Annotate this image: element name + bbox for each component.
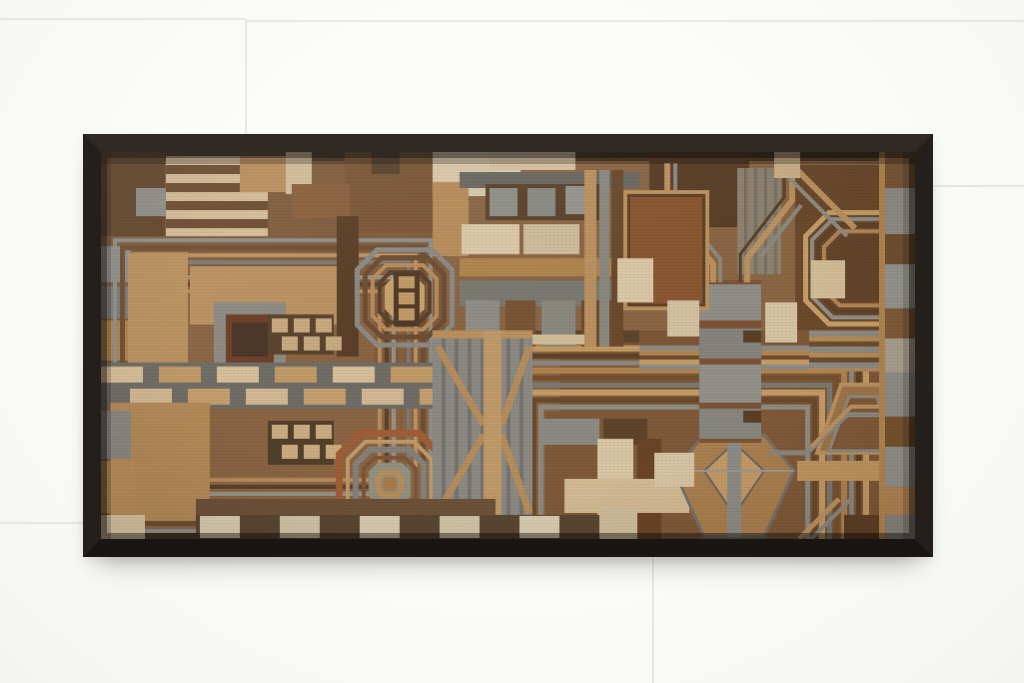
art-shape [809,330,885,336]
art-shape [304,445,320,459]
art-shape [304,336,320,350]
art-shape [809,369,885,371]
art-shape [282,336,298,350]
art-shape [809,363,885,369]
art-shape [539,419,599,445]
art-shape [507,330,511,539]
art-shape [727,435,741,537]
art-shape [754,168,757,274]
art-shape [903,152,915,539]
art-shape [166,228,268,236]
art-shape [166,210,268,219]
art-shape [699,365,761,403]
art-shape [809,353,885,358]
art-shape [316,425,332,439]
art-shape [462,224,520,254]
art-shape [599,170,609,346]
art-shape [667,300,699,336]
art-shape [362,389,404,405]
art-shape [304,389,346,405]
art-shape [217,367,259,383]
art-shape [809,358,885,363]
art-shape [490,188,518,216]
art-shape [166,219,268,228]
art-shape [294,425,310,439]
art-shape [391,367,433,383]
art-shape [757,168,764,274]
art-shape [246,389,288,405]
art-shape [272,318,288,332]
art-shape [383,477,397,491]
art-shape [879,152,885,539]
art-shape [275,367,317,383]
art-shape [597,439,633,485]
art-shape [316,318,332,332]
art-shape [510,330,519,539]
art-shape [188,389,230,405]
art-shape [101,152,111,539]
art-shape [809,341,885,346]
art-shape [282,445,298,459]
art-shape [399,308,415,320]
art-shape [765,302,797,342]
art-shape [166,201,268,210]
art-shape [523,224,579,254]
art-shape [333,367,375,383]
wall-background [0,0,1024,683]
art-shape [797,461,885,481]
art-shape [743,330,761,342]
art-shape [399,292,415,304]
art-shape [159,367,201,383]
art-shape [292,184,350,218]
art-shape [584,170,596,346]
art-shape [743,411,761,423]
art-shape [132,252,188,372]
art-shape [617,258,653,302]
art-shape [654,453,694,487]
art-shape [809,347,885,353]
art-shape [399,276,415,288]
art-shape [166,192,268,201]
artwork-frame [83,134,933,557]
art-shape [527,188,555,216]
art-shape [294,318,310,332]
art-shape [272,425,288,439]
art-shape [326,336,342,350]
art-shape [130,389,172,405]
wood-mosaic-artwork [101,152,915,539]
art-shape [811,260,845,298]
art-shape [809,336,885,341]
art-shape [101,152,915,164]
art-shape [433,330,533,338]
frame-inner-lip [101,152,915,539]
art-shape [136,188,166,216]
art-shape [196,499,496,515]
art-shape [232,322,268,356]
